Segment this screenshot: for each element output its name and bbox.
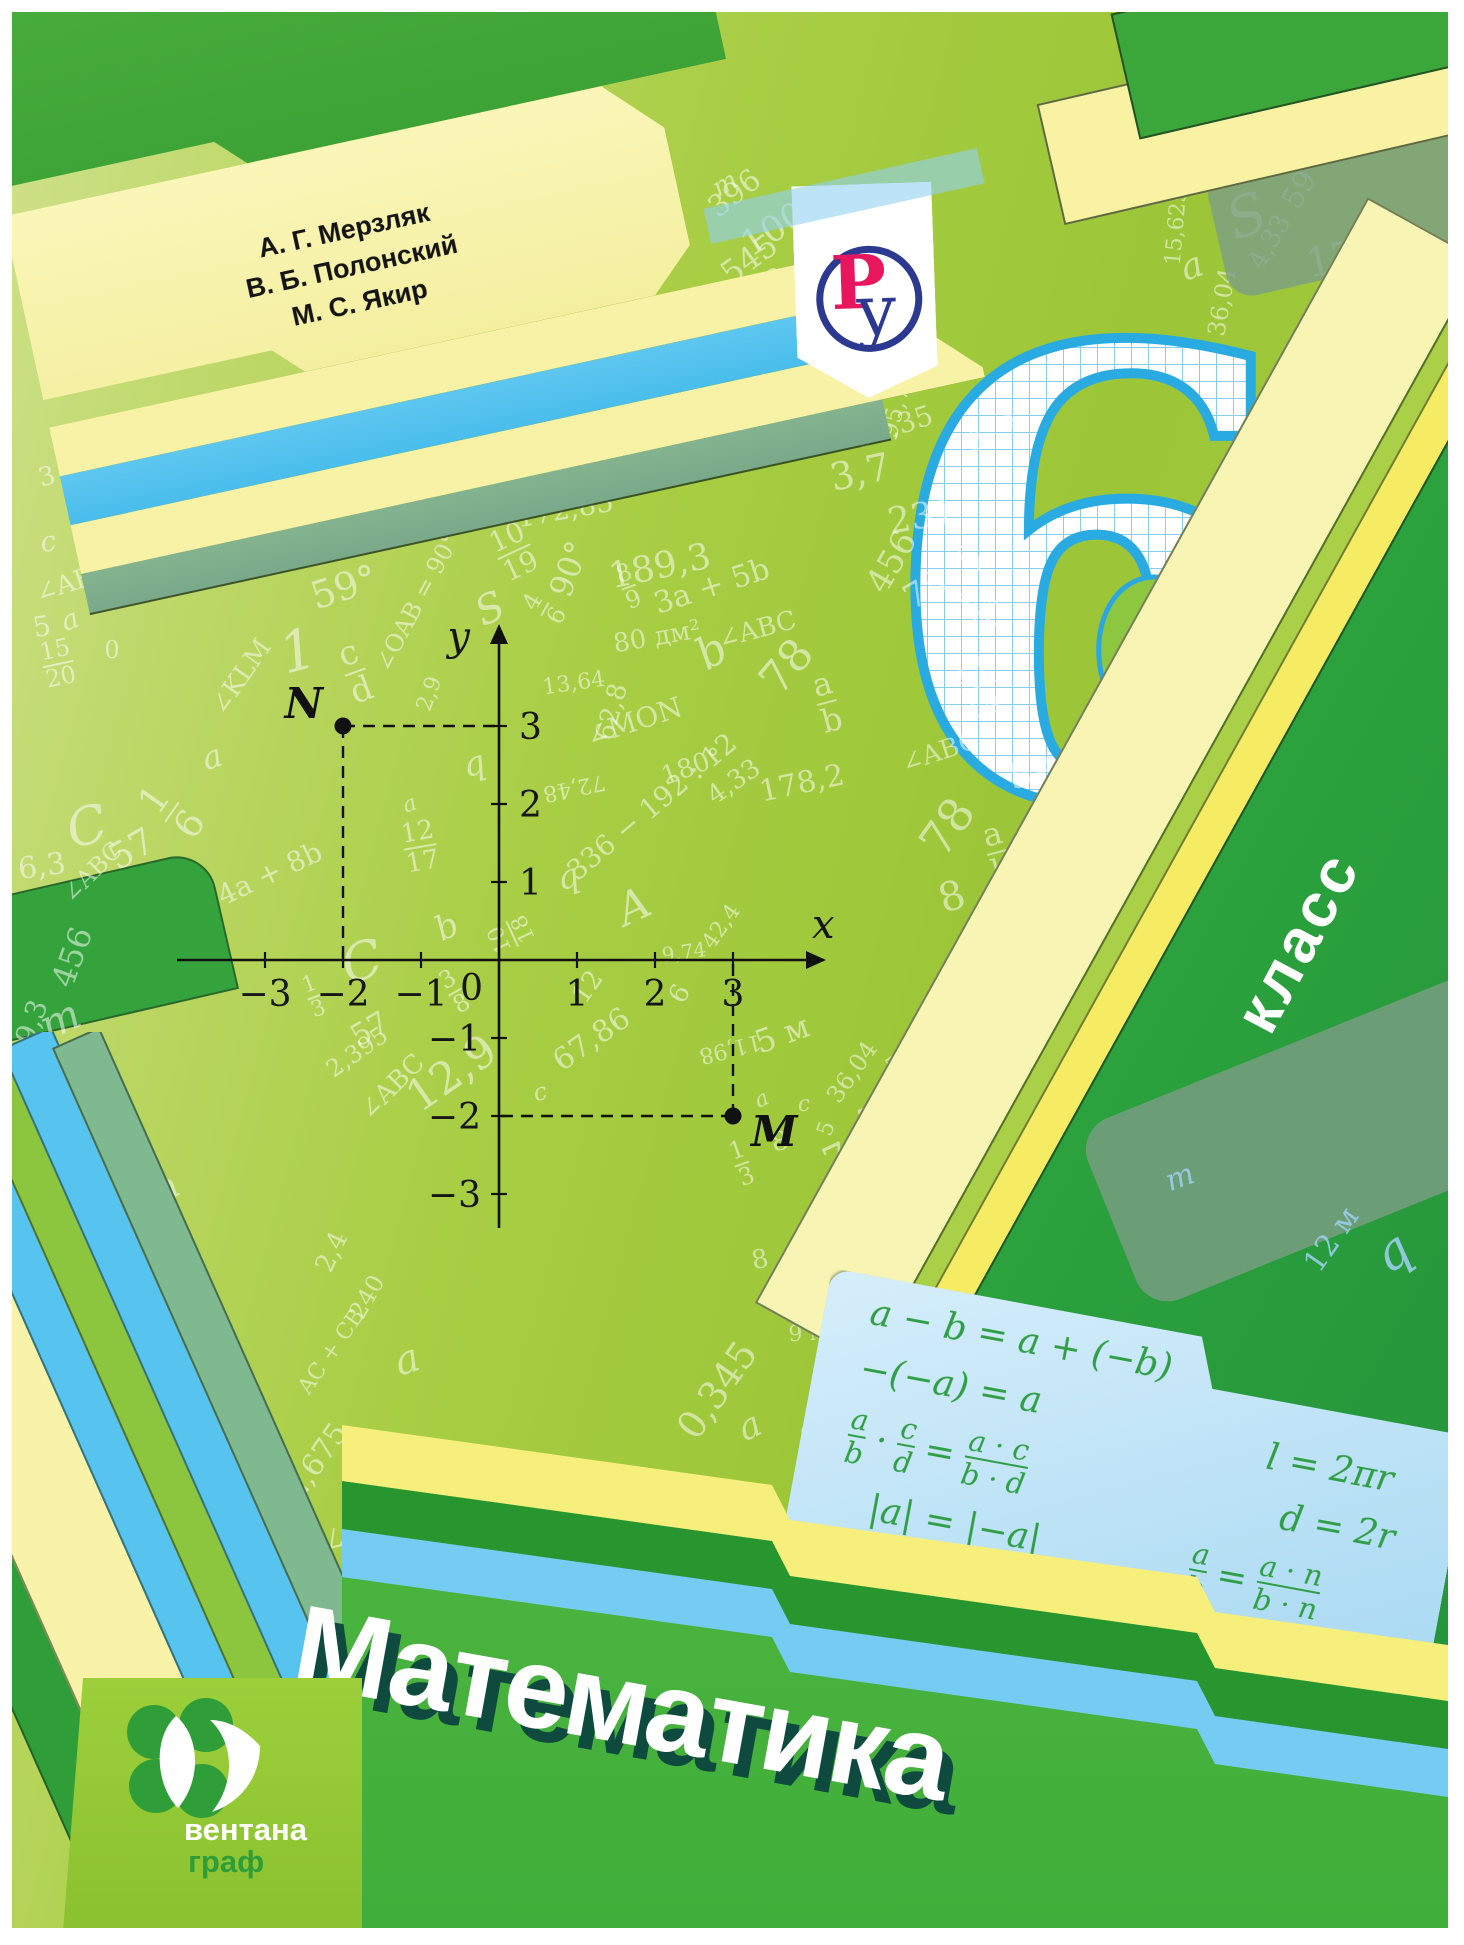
page-margin-top	[0, 0, 1464, 12]
x-tick-label: −3	[238, 974, 291, 1015]
publisher-logo-icon	[106, 1692, 266, 1832]
book-cover: 6 c d 1,50396100545128m1,866,39,83,791,3…	[0, 0, 1464, 1945]
x-arrow-icon	[806, 951, 826, 969]
authors-block: А. Г. Мерзляк В. Б. Полонский М. С. Якир	[164, 174, 539, 359]
publisher-mark-letter-u: у	[854, 275, 898, 346]
point-dashes	[343, 726, 499, 960]
scatter-item: a	[389, 1337, 424, 1382]
scatter-item: 6,3	[16, 849, 67, 885]
y-tick-label: −2	[428, 1097, 481, 1138]
point-label: M	[749, 1107, 799, 1156]
plot-point	[335, 718, 352, 735]
page-margin-left	[0, 0, 12, 1945]
origin-label: 0	[460, 968, 483, 1009]
page-margin-right	[1448, 0, 1464, 1945]
publisher-panel: вентана граф	[62, 1678, 362, 1928]
scatter-item: 3	[36, 462, 59, 491]
y-tick-label: −3	[428, 1175, 481, 1216]
y-tick-label: 3	[519, 707, 542, 748]
point-label: N	[283, 679, 325, 728]
scatter-item: 8	[934, 874, 971, 920]
scatter-item: 3,7	[826, 447, 893, 497]
page-margin-bottom	[0, 1928, 1464, 1945]
y-axis-label: y	[445, 614, 471, 660]
x-tick-label: 2	[644, 974, 667, 1015]
scatter-item: c	[38, 527, 58, 557]
publisher-name-bottom: граф	[188, 1846, 264, 1877]
scatter-item: 1520	[37, 635, 78, 694]
x-axis-label: x	[812, 902, 835, 948]
publisher-name-top: вентана	[184, 1814, 307, 1845]
scatter-item: 0	[104, 638, 119, 662]
y-tick-label: 2	[519, 785, 542, 826]
y-tick-label: −1	[428, 1019, 481, 1060]
cover-artwork: 6 c d 1,50396100545128m1,866,39,83,791,3…	[12, 12, 1448, 1928]
scatter-item: a	[57, 604, 82, 636]
x-tick-label: −1	[394, 974, 447, 1015]
x-tick-label: −2	[316, 974, 369, 1015]
y-arrow-icon	[490, 624, 508, 644]
y-tick-label: 1	[519, 863, 542, 904]
x-tick-label: 3	[722, 974, 745, 1015]
x-tick-label: 1	[566, 974, 589, 1015]
point-dashes	[499, 960, 733, 1116]
plot-point	[725, 1108, 742, 1125]
